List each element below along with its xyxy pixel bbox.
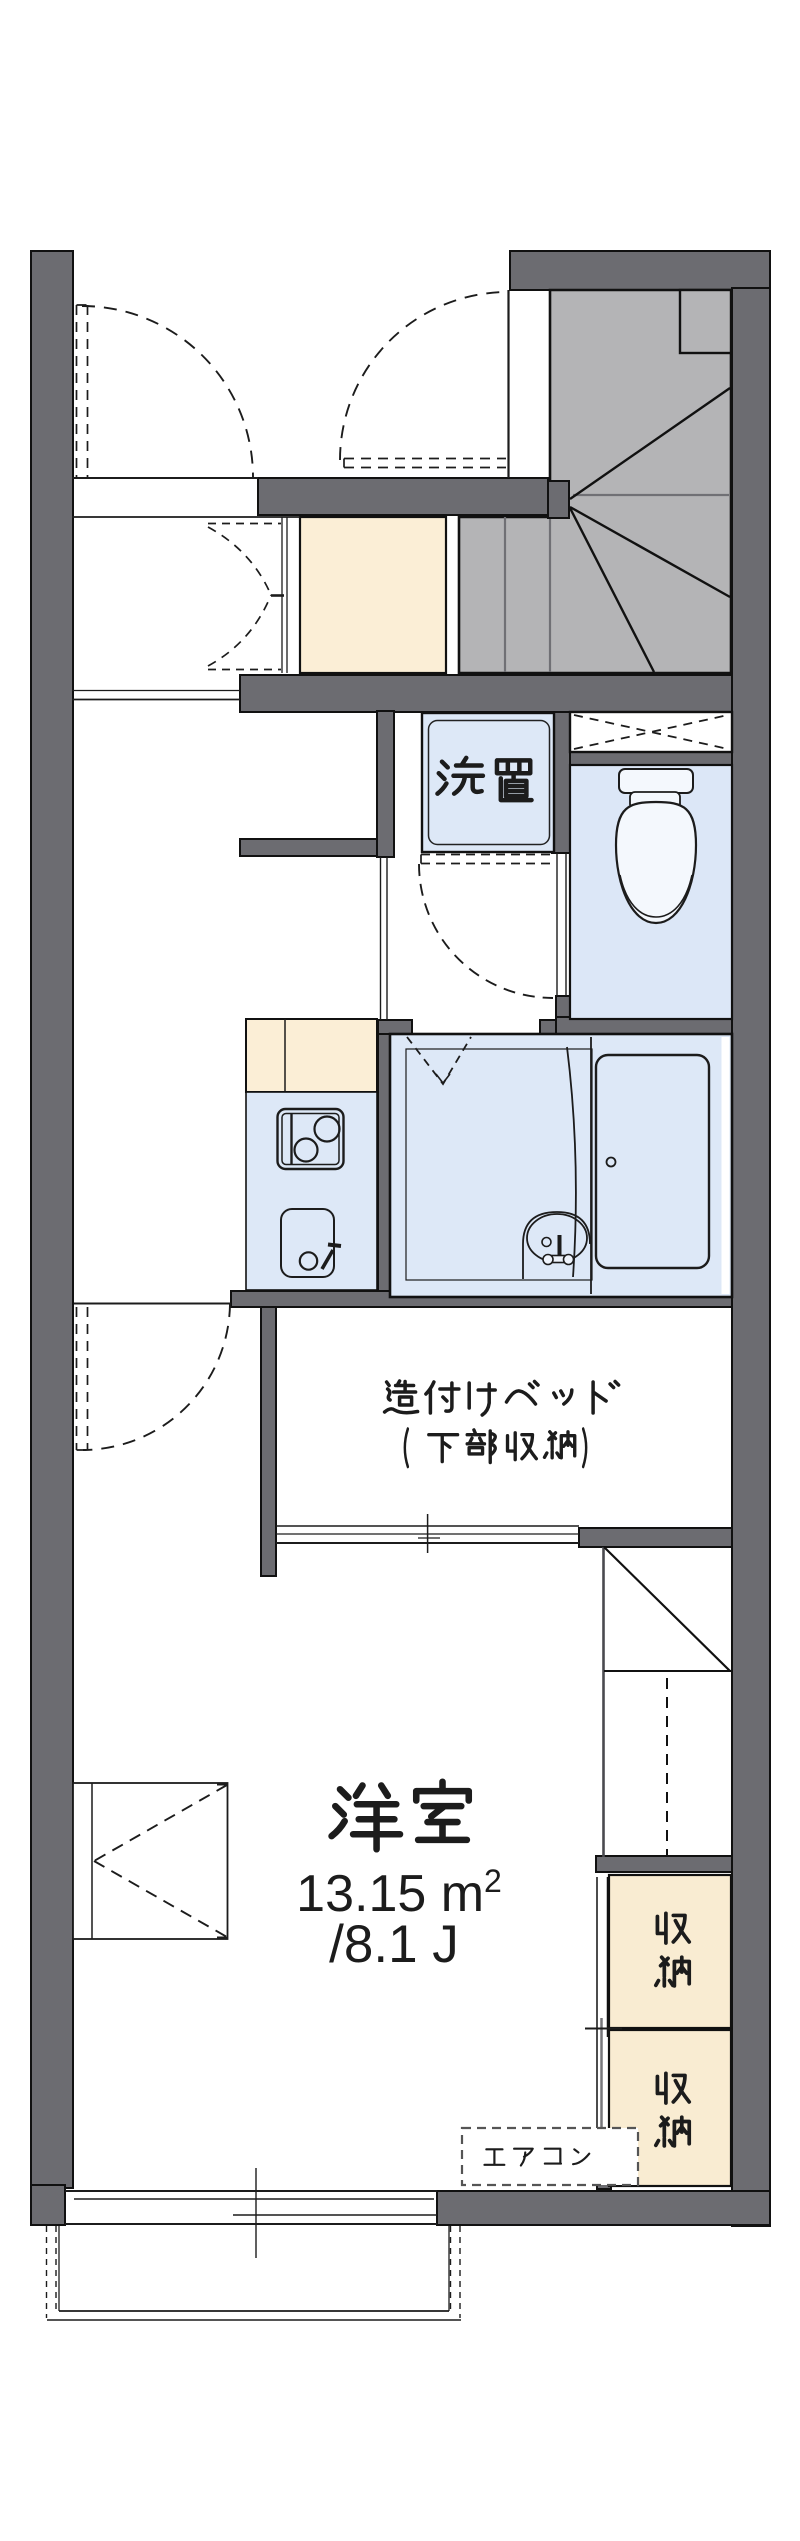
svg-text:13.15 m2: 13.15 m2	[296, 1863, 502, 1923]
svg-text:/8.1 J: /8.1 J	[329, 1915, 459, 1974]
